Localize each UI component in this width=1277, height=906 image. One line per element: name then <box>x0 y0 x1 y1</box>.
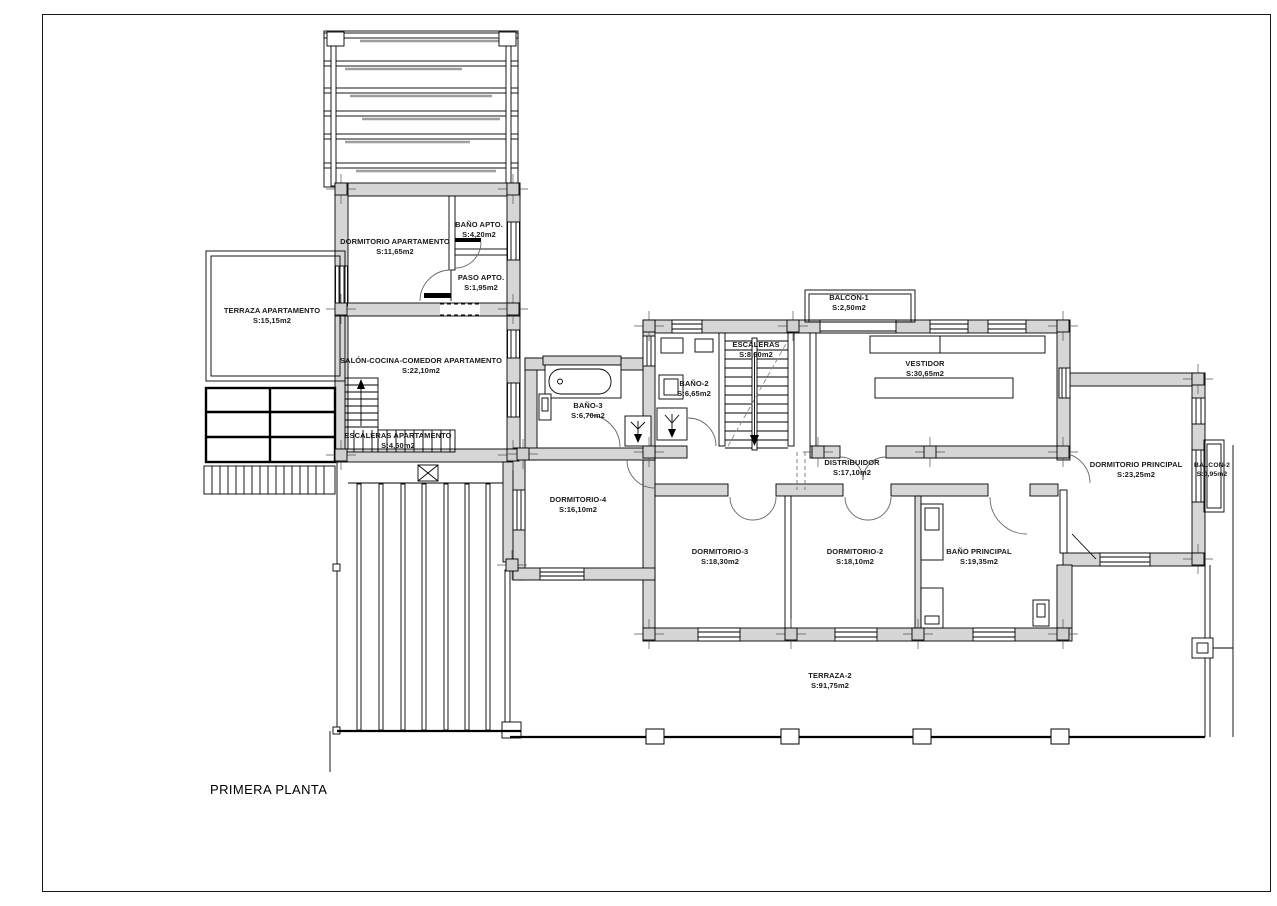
apartment-terrace-steps <box>204 466 335 494</box>
balcony-2 <box>1204 440 1224 512</box>
balcony-1 <box>805 290 915 322</box>
terrace-2-boundary <box>510 445 1233 744</box>
apartment-terrace-grid <box>206 388 335 462</box>
main-stairs <box>725 338 788 450</box>
stairs-down-arrow <box>750 435 759 446</box>
column-markers <box>326 174 1213 649</box>
floor-plan-page: DORMITORIO APARTAMENTO S:11,65m2 BAÑO AP… <box>0 0 1277 906</box>
wardrobe <box>870 336 1045 398</box>
apartment-roof-pergola <box>324 31 518 187</box>
plan-title: PRIMERA PLANTA <box>210 782 327 797</box>
stairs-up-arrow <box>357 379 365 389</box>
floor-plan-drawing <box>0 0 1277 906</box>
garden-pergola <box>330 462 521 772</box>
bathroom2-fixtures <box>657 338 713 440</box>
apartment-terrace-railing <box>206 251 345 381</box>
apartment-stairs <box>345 378 455 452</box>
